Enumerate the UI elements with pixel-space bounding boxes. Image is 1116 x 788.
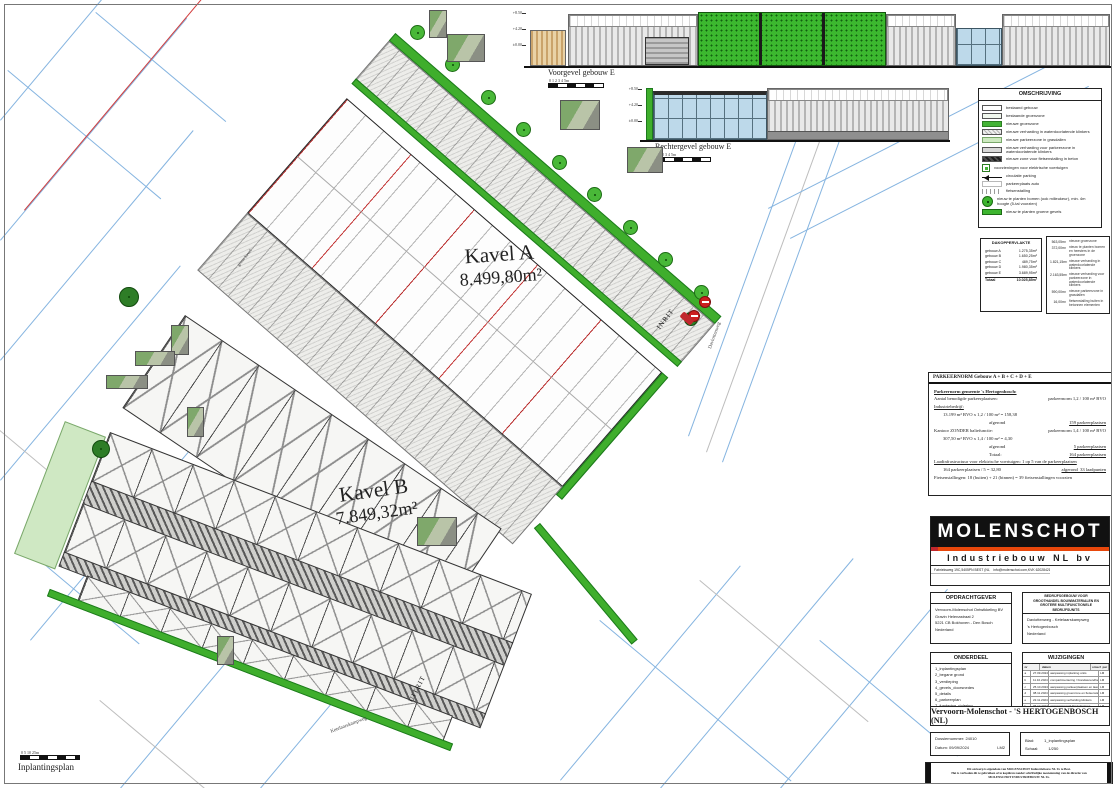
parking-norm-line: Totaal:164 parkeerplaatsen — [989, 452, 1106, 457]
cadastral-line — [7, 70, 161, 199]
parking-norm-line: 13.199 m² BVO x 1,2 / 100 m² = 158,38 — [943, 412, 1106, 417]
blad-label: Blad: — [1025, 738, 1034, 743]
wijzigingen-row: e22.11.2024aanpassing verharding klinker… — [1023, 697, 1109, 704]
legend-item: parkeerplaats auto — [982, 181, 1098, 187]
scale-bar-right — [655, 157, 711, 162]
brand-block: MOLENSCHOT Industriebouw NL bv Fabrieksw… — [930, 516, 1110, 586]
level-marker: ±0.00 — [616, 118, 642, 134]
project-address: Daviottenweg - Ketelaarskampweg's Hertog… — [1023, 614, 1109, 635]
parking-norm-line: 307,50 m² BVO x 1,4 / 100 m² = 4,30 — [943, 436, 1106, 441]
wijzigingen-rows: a27.09.2024aanpassing inplanting unitsLM… — [1023, 671, 1109, 710]
legend-item-label: nieuwe verharding in waterdoorlatende kl… — [1006, 130, 1090, 134]
surface-rows: 563,05m²nieuwe groenzone372,00m²nieuw te… — [1047, 237, 1109, 307]
glass-entrance-section — [956, 28, 1002, 66]
wijzigingen-header-cell: omschrijving wijziging — [1091, 664, 1101, 670]
wijzigingen-header-cell: par — [1101, 664, 1109, 670]
project-title-lines: BEDRIJFSGEBOUW VOORGROOTHANDEL BOUWMATER… — [1023, 593, 1109, 614]
tree-icon — [481, 90, 496, 105]
parking-norm-line: Laadinfrastructuur voor elektrische voer… — [934, 459, 1106, 464]
elevation-front-wood-section — [530, 30, 566, 66]
legend-item: nieuwe verharding in waterdoorlatende kl… — [982, 129, 1098, 135]
glass-curtain-wall — [653, 91, 767, 140]
legend-item: nieuwe zone voor fietsenstalling in beto… — [982, 156, 1098, 162]
photo-thumbnail — [135, 351, 175, 366]
legend-item-label: bestaand gebouw — [1006, 106, 1038, 110]
project-title-line: BEDRIJFSUNITS — [1023, 608, 1109, 613]
green-facade-section — [698, 12, 886, 66]
table-row: 1.821,15m²nieuwe verharding in waterdoor… — [1050, 260, 1106, 271]
level-marker: +4.20 — [500, 26, 526, 42]
photo-thumbnail — [187, 407, 204, 437]
legend-item-label: nieuwe zone voor fietsenstalling in beto… — [1006, 157, 1078, 161]
legend-items: bestaand gebouw bestaande groenzone nieu… — [979, 101, 1101, 215]
parking-norm-line: Fietsenstallingen: 18 (buiten) + 21 (bin… — [934, 475, 1106, 480]
brand-orange-stripe — [931, 547, 1109, 551]
brand-logo: MOLENSCHOT — [931, 517, 1109, 547]
opdrachtgever-line: Nederland — [935, 627, 1007, 632]
onderdeel-title: ONDERDEEL — [931, 653, 1011, 664]
contact-cell: Fabrieksweg 19C,5405PN BEST (NL),T +31 (… — [931, 566, 990, 574]
legend-item: bestaand gebouw — [982, 105, 1098, 111]
legend-swatch-icon — [982, 209, 1002, 215]
onderdeel-items: 1_inplantingsplan2_begane grond3_verdiep… — [931, 664, 1011, 710]
wijzigingen-header-cell: nr — [1023, 664, 1040, 670]
parking-norm-title: PARKEERNORM Gebouw A + B + C + D + E — [929, 373, 1111, 384]
wijzigingen-row: d08.11.2024aanpassing groenzone en fiets… — [1023, 690, 1109, 697]
parking-norm-box: PARKEERNORM Gebouw A + B + C + D + E Par… — [928, 372, 1112, 496]
project-address-line: Daviottenweg - Ketelaarskampweg — [1027, 617, 1105, 622]
legend-item: voorzieningen voor elektrische voertuige… — [982, 164, 1098, 172]
parking-norm-line: Industriebedrijf: — [934, 404, 1106, 409]
legend-swatch-icon — [982, 177, 1002, 178]
parking-norm-line: afgerond159 parkeerplaatsen — [989, 420, 1106, 425]
legend-item-label: nieuw te planten bomen (ook milieukeur),… — [997, 197, 1098, 206]
tree-icon — [623, 220, 638, 235]
onderdeel-box: ONDERDEEL 1_inplantingsplan2_begane gron… — [930, 652, 1012, 710]
table-row: gebouw C489,75m² — [985, 260, 1037, 264]
wijzigingen-header: nrdatumomschrijving wijzigingpar — [1023, 664, 1109, 671]
opdrachtgever-line: Vervoorn-Molenschot Ontwikkeling BV — [935, 607, 1007, 612]
opdrachtgever-title: OPDRACHTGEVER — [931, 593, 1011, 604]
legend-item: nieuwe verharding voor parkeerzone in wa… — [982, 146, 1098, 155]
table-row: gebouw D1.980,35m² — [985, 265, 1037, 269]
table-row: 372,00m²nieuw te planten bomen en heeste… — [1050, 246, 1106, 257]
table-row: gebouw A1.275,35m² — [985, 249, 1037, 253]
legend-swatch-icon — [982, 164, 990, 172]
cadastral-line — [99, 700, 207, 788]
project-address-line: 's Hertogenbosch — [1027, 624, 1105, 629]
surface-area-table: 563,05m²nieuwe groenzone372,00m²nieuw te… — [1046, 236, 1110, 314]
legend-item-label: fietsenstalling — [1006, 189, 1030, 193]
elevation-right-label: Rechtergevel gebouw E — [655, 142, 731, 151]
roof-area-title: DAKOPPERVLAKTE — [981, 239, 1041, 247]
cadastral-line — [95, 12, 226, 122]
legend-item-label: circulatie parking — [1006, 174, 1036, 178]
cadastral-line — [0, 0, 104, 121]
legend-item-label: nieuwe verharding voor parkeerzone in wa… — [1006, 146, 1098, 155]
onderdeel-item: 6_parkeerplan — [935, 697, 1007, 702]
onderdeel-item: 5_details — [935, 691, 1007, 696]
project-address-line: Nederland — [1027, 631, 1105, 636]
tree-icon — [658, 252, 673, 267]
level-marker: +8.50 — [616, 86, 642, 102]
elevation-right-clad-section — [767, 88, 949, 140]
tree-icon — [119, 287, 139, 307]
cadastral-line — [560, 566, 741, 781]
level-marker: ±0.00 — [500, 42, 526, 58]
table-row: 2.163,55m²nieuwe verharding voor parkeer… — [1050, 273, 1106, 288]
legend-item-label: parkeerplaats auto — [1006, 182, 1039, 186]
wijzigingen-title: WIJZIGINGEN — [1023, 653, 1109, 664]
legend-item: bestaande groenzone — [982, 113, 1098, 119]
no-entry-icon — [699, 296, 711, 308]
legend-swatch-icon — [982, 113, 1002, 119]
plan-scale-bar — [20, 755, 80, 760]
opdrachtgever-box: OPDRACHTGEVER Vervoorn-Molenschot Ontwik… — [930, 592, 1012, 644]
tree-icon — [587, 187, 602, 202]
table-row: 563,05m²nieuwe groenzone — [1050, 240, 1106, 244]
table-row: 590,00m²nieuwe parkeerzone in grasdallen — [1050, 290, 1106, 297]
onderdeel-item: 2_begane grond — [935, 672, 1007, 677]
project-name-bar: Vervoorn-Molenschot - 'S HERTOGENBOSCH (… — [930, 706, 1110, 726]
legend-swatch-icon — [982, 196, 993, 207]
copyright-endcap — [925, 762, 931, 784]
photo-thumbnail — [217, 636, 234, 665]
legend-swatch-icon — [982, 147, 1002, 153]
street-label-bottom: Ketelaarskampweg — [330, 716, 368, 734]
legend-item: nieuw te planten bomen (ook milieukeur),… — [982, 196, 1098, 207]
wijzigingen-row: a27.09.2024aanpassing inplanting unitsLM — [1023, 671, 1109, 678]
elevation-front-clad-section — [568, 14, 698, 66]
level-markers-front: +8.50+4.20±0.00 — [500, 10, 526, 58]
table-row: gebouw B1.650,25m² — [985, 254, 1037, 258]
legend-swatch-icon — [982, 137, 1002, 143]
cadastral-line — [599, 620, 791, 781]
onderdeel-item: 3_verdieping — [935, 679, 1007, 684]
legend-title: OMSCHRIJVING — [979, 89, 1101, 101]
tree-icon — [552, 155, 567, 170]
elevation-front-label: Voorgevel gebouw E — [548, 68, 615, 77]
copyright-box: Dit ontwerp is eigendom van MOLENSCHOT I… — [925, 762, 1113, 784]
cadastral-line — [0, 130, 194, 360]
legend-item: circulatie parking — [982, 174, 1098, 178]
drawing-sheet: Kavel A 8.499,80m² Kavel B 7.849,32m² IN… — [0, 0, 1116, 788]
photo-thumbnail — [447, 34, 485, 62]
copyright-endcap — [1107, 762, 1113, 784]
wijzigingen-box: WIJZIGINGEN nrdatumomschrijving wijzigin… — [1022, 652, 1110, 710]
plan-caption: Inplantingsplan — [18, 762, 74, 772]
legend-item-label: nieuwe groenzone — [1006, 122, 1039, 126]
brand-contact: Fabrieksweg 19C,5405PN BEST (NL),T +31 (… — [931, 566, 1109, 574]
onderdeel-item: 4_gevels_doorsnedes — [935, 685, 1007, 690]
legend-item: nieuwe groenzone — [982, 121, 1098, 127]
green-facade-sliver — [646, 88, 653, 140]
level-markers-right: +8.50+4.20±0.00 — [616, 86, 642, 134]
wijzigingen-row: b11.10.2024compartimentering / brandwere… — [1023, 677, 1109, 684]
copyright-lines: Dit ontwerp is eigendom van MOLENSCHOT I… — [926, 767, 1112, 780]
photo-thumbnail — [627, 147, 663, 173]
level-marker: +8.50 — [500, 10, 526, 26]
legend-item-label: nieuw te planten groene gevels — [1006, 210, 1061, 214]
legend-swatch-icon — [982, 129, 1002, 135]
wijzigingen-row: c25.10.2024aanpassing parkeerplaatsen en… — [1023, 684, 1109, 691]
roof-area-table: DAKOPPERVLAKTE gebouw A1.275,35m²gebouw … — [980, 238, 1042, 312]
photo-thumbnail — [417, 517, 457, 546]
photo-thumbnail — [429, 10, 447, 38]
green-strip-southeast — [534, 523, 638, 645]
scale-bar-front — [548, 83, 604, 88]
roof-area-total: Totaal10.025,85m² — [985, 277, 1037, 282]
parking-norm-line: Kantoor ZONDER baliefunctie:parkeernorm … — [934, 428, 1106, 433]
legend-swatch-icon — [982, 121, 1002, 127]
table-row: gebouw E3.689,95m² — [985, 271, 1037, 275]
opdrachtgever-line: Gravin Helenastraat 2 — [935, 614, 1007, 619]
tree-icon — [92, 440, 110, 458]
legend-box: OMSCHRIJVING bestaand gebouw bestaande g… — [978, 88, 1102, 228]
legend-swatch-icon — [982, 181, 1002, 187]
table-row: 16,00m²fietsenstalling buiten in betonne… — [1050, 300, 1106, 307]
legend-item: nieuw te planten groene gevels — [982, 209, 1098, 215]
legend-swatch-icon — [982, 105, 1002, 111]
parking-norm-line: afgerond5 parkeerplaatsen — [989, 444, 1106, 449]
brand-subtitle: Industriebouw NL bv — [931, 551, 1109, 566]
dossier-box: Dossiernummer: 24010 Datum: 09/09/2024 L… — [930, 732, 1010, 756]
opdrachtgever-line: 5221 CB Bokhoven - Den Bosch — [935, 620, 1007, 625]
legend-item: fietsenstalling — [982, 189, 1098, 194]
tree-icon — [410, 25, 425, 40]
schaal-value: 1/250 — [1048, 746, 1058, 751]
parking-norm-line: Aantal benodigde parkeerplaatsen:parkeer… — [934, 396, 1106, 401]
roof-area-rows: gebouw A1.275,35m²gebouw B1.650,25m²gebo… — [981, 249, 1041, 275]
drawer-initials: LM2 — [997, 745, 1005, 750]
elevation-front — [530, 8, 1106, 66]
contact-cell: info@molenschot.com,KVK 62028421,BTW NL … — [990, 566, 1049, 574]
elevation-front-clad-section-3 — [1002, 14, 1110, 66]
copyright-line: MOLENSCHOT INDUSTRIEBOUW NL bv. — [936, 775, 1102, 779]
blad-value: 1_inplantingsplan — [1044, 738, 1075, 743]
legend-item: nieuwe parkeerzone in grasdallen — [982, 137, 1098, 143]
elevation-front-clad-section-2 — [886, 14, 956, 66]
tree-icon — [516, 122, 531, 137]
legend-item-label: bestaande groenzone — [1006, 114, 1045, 118]
level-marker: +4.20 — [616, 102, 642, 118]
legend-item-label: voorzieningen voor elektrische voertuige… — [994, 166, 1068, 170]
onderdeel-item: 1_inplantingsplan — [935, 666, 1007, 671]
schaal-label: Schaal: — [1025, 746, 1038, 751]
cadastral-line — [706, 114, 830, 453]
legend-swatch-icon — [982, 156, 1002, 162]
elevation-right — [646, 84, 944, 140]
project-name: Vervoorn-Molenschot - 'S HERTOGENBOSCH (… — [931, 707, 1109, 725]
legend-swatch-icon — [982, 189, 1002, 194]
parking-norm-line: 164 parkeerplaatsen / 5 = 32,80afgerond … — [943, 467, 1106, 472]
photo-thumbnail — [560, 100, 600, 130]
opdrachtgever-lines: Vervoorn-Molenschot Ontwikkeling BVGravi… — [931, 604, 1011, 632]
cadastral-line — [699, 580, 868, 722]
parking-norm-lines: Parkeernorm gemeente 's Hertogenbosch: A… — [929, 384, 1111, 481]
blad-box: Blad: 1_inplantingsplan Schaal: 1/250 — [1020, 732, 1110, 756]
parking-norm-line: Parkeernorm gemeente 's Hertogenbosch: — [934, 389, 1106, 394]
photo-thumbnail — [106, 375, 148, 389]
project-description-box: BEDRIJFSGEBOUW VOORGROOTHANDEL BOUWMATER… — [1022, 592, 1110, 644]
cadastral-line — [0, 18, 187, 241]
cadastral-line — [780, 589, 948, 788]
legend-item-label: nieuwe parkeerzone in grasdallen — [1006, 138, 1066, 142]
dossier-number: Dossiernummer: 24010 — [935, 736, 1005, 741]
cadastral-line — [24, 0, 243, 211]
roller-door — [645, 37, 689, 65]
drawing-date: Datum: 09/09/2024 — [935, 745, 969, 750]
wijzigingen-header-cell: datum — [1040, 664, 1090, 670]
